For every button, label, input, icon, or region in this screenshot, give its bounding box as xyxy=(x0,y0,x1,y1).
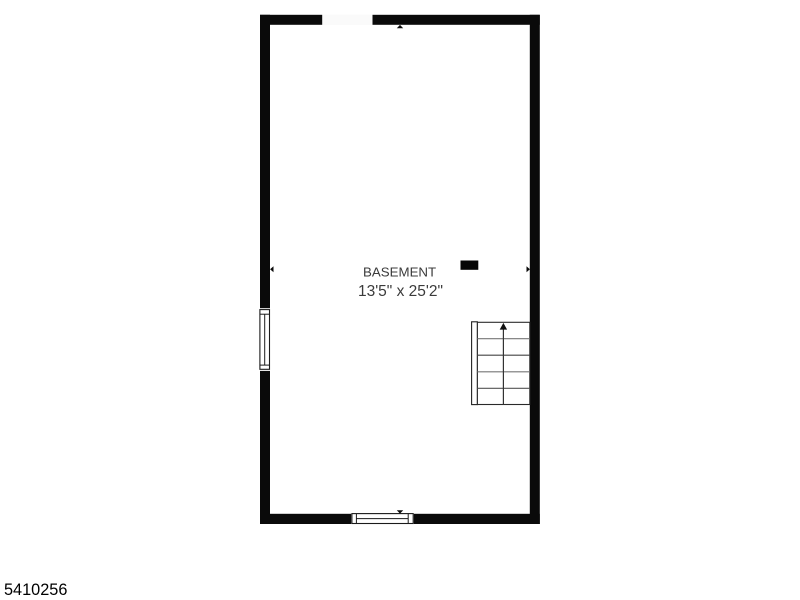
svg-text:13'5" x 25'2": 13'5" x 25'2" xyxy=(358,283,443,300)
svg-text:BASEMENT: BASEMENT xyxy=(363,265,436,280)
svg-text:5410256: 5410256 xyxy=(4,581,67,599)
